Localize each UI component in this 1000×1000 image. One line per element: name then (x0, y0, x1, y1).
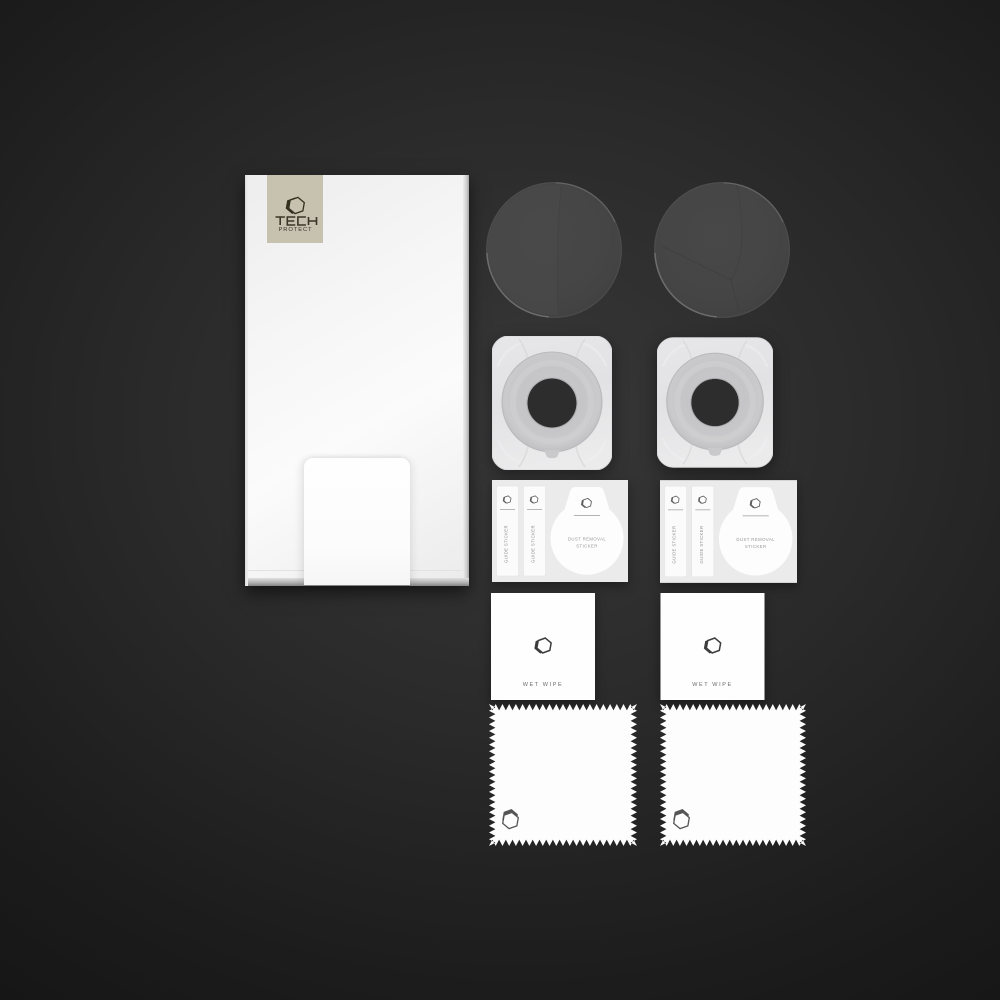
svg-text:GUIDE STICKER: GUIDE STICKER (672, 526, 677, 564)
svg-text:WET WIPE: WET WIPE (523, 682, 564, 688)
svg-text:WET WIPE: WET WIPE (692, 682, 733, 688)
svg-text:PROTECT: PROTECT (279, 227, 313, 233)
svg-text:STICKER: STICKER (576, 544, 597, 549)
svg-text:DUST REMOVAL: DUST REMOVAL (736, 537, 775, 542)
svg-text:GUIDE STICKER: GUIDE STICKER (504, 525, 509, 563)
svg-text:GUIDE STICKER: GUIDE STICKER (699, 526, 704, 564)
svg-text:DUST REMOVAL: DUST REMOVAL (568, 537, 607, 542)
svg-text:GUIDE STICKER: GUIDE STICKER (531, 525, 536, 563)
svg-text:STICKER: STICKER (745, 544, 767, 549)
